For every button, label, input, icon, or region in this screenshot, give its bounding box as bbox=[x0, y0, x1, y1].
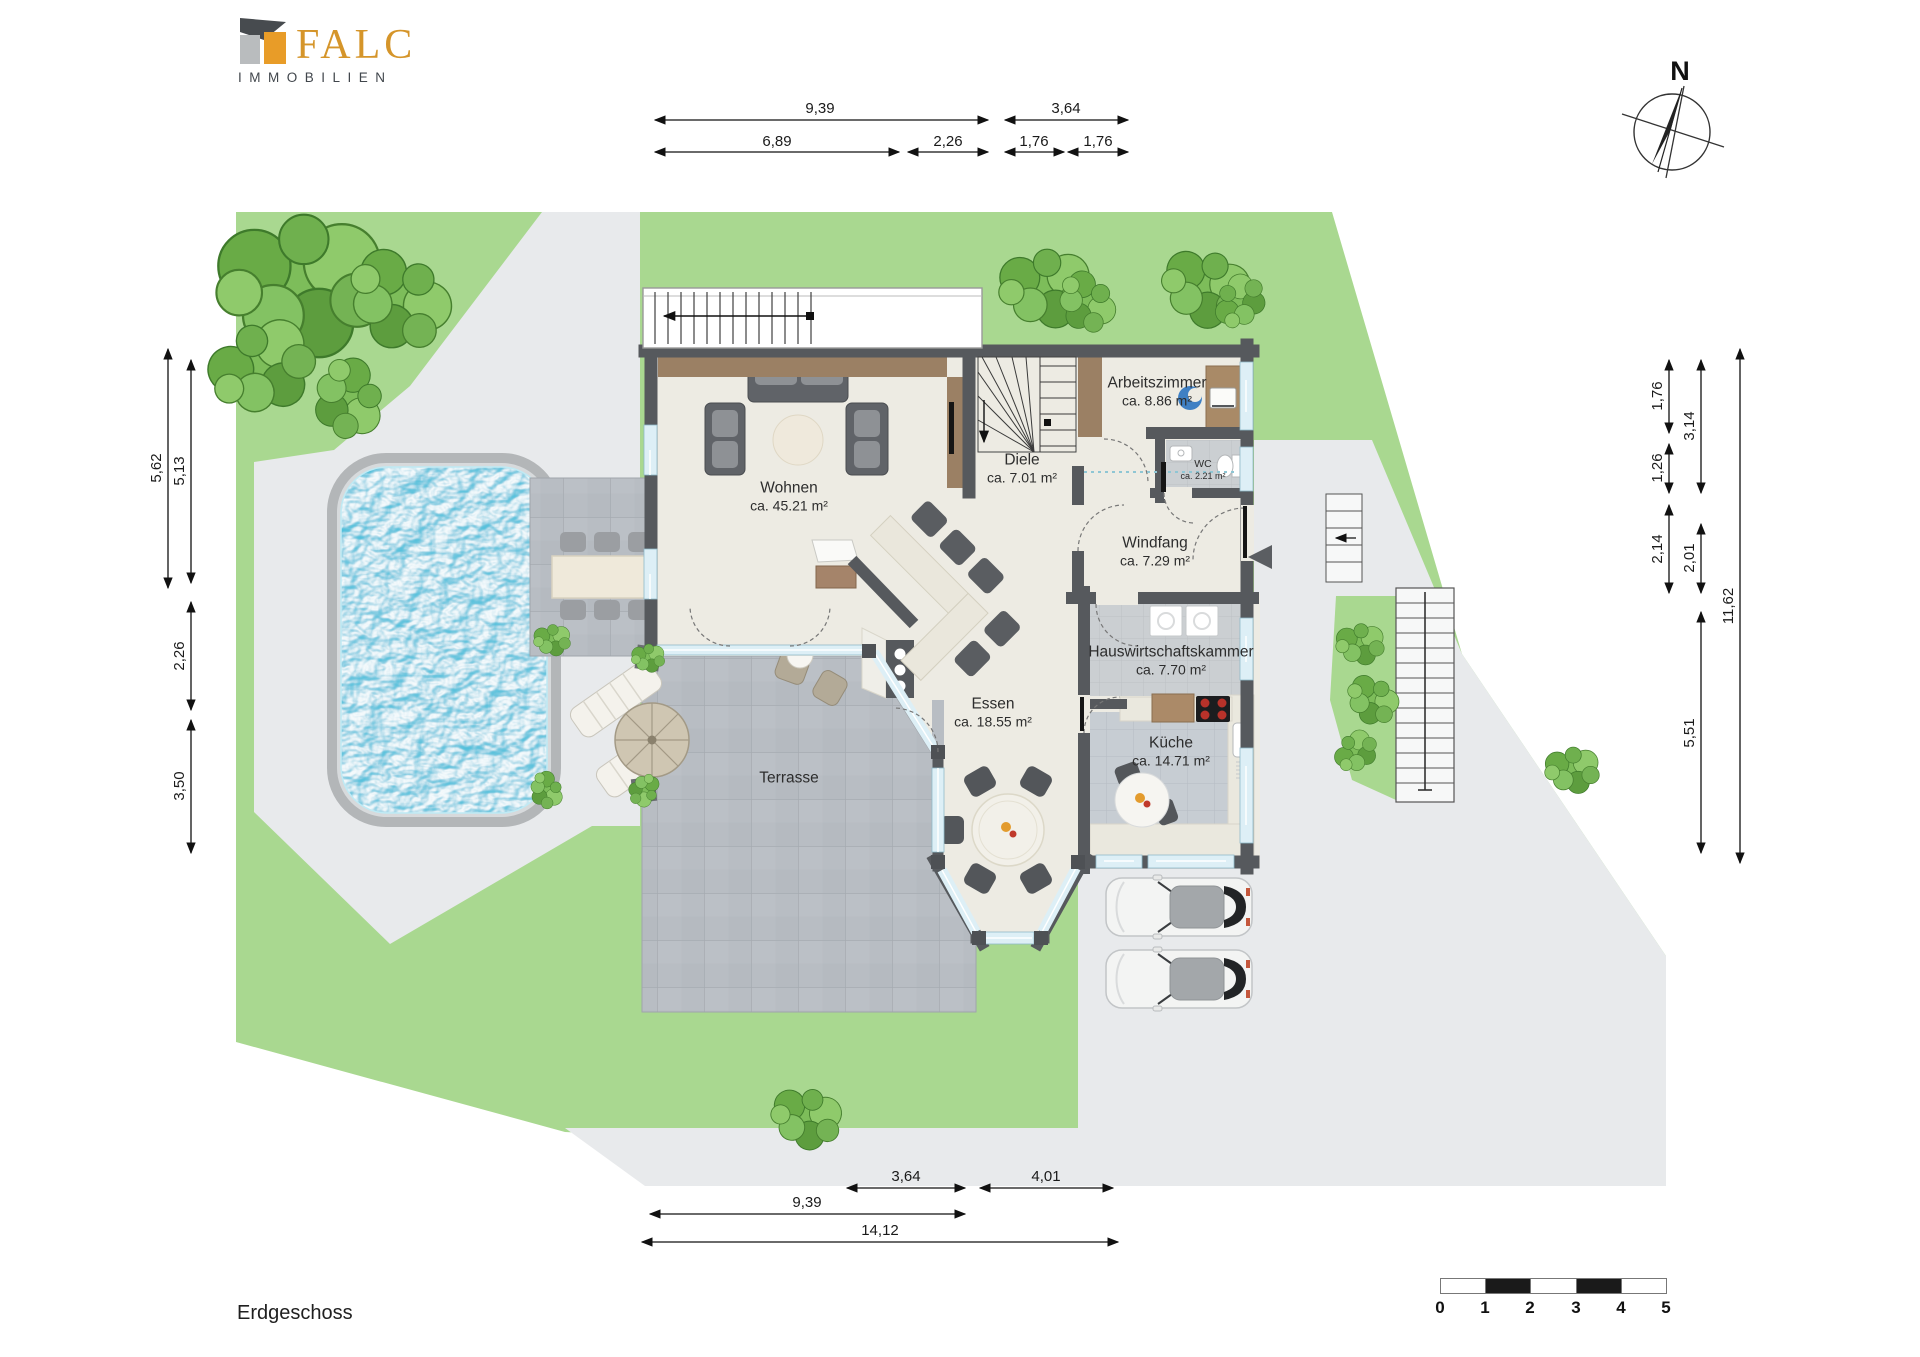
room-label-diele: Diele ca. 7.01 m² bbox=[987, 451, 1057, 488]
room-label-arbeitszimmer: Arbeitszimmer ca. 8.86 m² bbox=[1107, 374, 1206, 411]
car-2 bbox=[1106, 947, 1252, 1011]
exterior-side-stair bbox=[1326, 494, 1362, 582]
dim-label: 2,26 bbox=[171, 641, 188, 670]
dim-label: 9,39 bbox=[805, 100, 834, 117]
terrace-dining-set bbox=[552, 532, 656, 620]
scale-tick: 3 bbox=[1566, 1298, 1586, 1318]
scale-tick: 1 bbox=[1475, 1298, 1495, 1318]
dim-label: 14,12 bbox=[861, 1222, 899, 1239]
pool bbox=[328, 454, 560, 826]
room-label-wc: WC ca. 2.21 m² bbox=[1180, 458, 1225, 482]
dim-label: 1,26 bbox=[1649, 453, 1666, 482]
dim-label: 9,39 bbox=[792, 1194, 821, 1211]
dim-label: 11,62 bbox=[1720, 588, 1737, 624]
dim-label: 3,50 bbox=[171, 771, 188, 800]
scale-tick: 4 bbox=[1611, 1298, 1631, 1318]
dim-label: 5,62 bbox=[148, 453, 165, 482]
dim-label: 1,76 bbox=[1083, 133, 1112, 150]
scale-bar-segment bbox=[1622, 1279, 1666, 1293]
scale-tick: 5 bbox=[1656, 1298, 1676, 1318]
pavement-road bbox=[565, 1128, 1666, 1186]
dim-label: 5,13 bbox=[171, 456, 188, 485]
scale-bar bbox=[1440, 1278, 1667, 1294]
scale-tick: 2 bbox=[1520, 1298, 1540, 1318]
dim-label: 6,89 bbox=[762, 133, 791, 150]
dim-label: 1,76 bbox=[1019, 133, 1048, 150]
site-plan: 9,39 3,64 6,89 2,26 1,76 1,76 5,62 5,13 … bbox=[0, 0, 1920, 1357]
car-1 bbox=[1106, 875, 1252, 939]
room-label-essen: Essen ca. 18.55 m² bbox=[954, 695, 1032, 732]
floor-label: Erdgeschoss bbox=[237, 1302, 353, 1325]
room-label-terrasse: Terrasse bbox=[759, 768, 818, 787]
dim-label: 1,76 bbox=[1649, 381, 1666, 410]
compass: N bbox=[1622, 56, 1724, 178]
room-label-windfang: Windfang ca. 7.29 m² bbox=[1120, 534, 1190, 571]
dim-label: 5,51 bbox=[1681, 718, 1698, 747]
dim-label: 3,64 bbox=[891, 1168, 920, 1185]
dim-label: 4,01 bbox=[1031, 1168, 1060, 1185]
dim-label: 3,14 bbox=[1681, 411, 1698, 440]
dim-label: 2,26 bbox=[933, 133, 962, 150]
dim-label: 2,14 bbox=[1649, 534, 1666, 563]
brand-name: FALC bbox=[296, 26, 416, 66]
scale-bar-segment bbox=[1531, 1279, 1576, 1293]
dim-label: 2,01 bbox=[1681, 543, 1698, 572]
scale-bar-segment bbox=[1577, 1279, 1622, 1293]
dim-label: 3,64 bbox=[1051, 100, 1080, 117]
falc-logo: FALC IMMOBILIEN bbox=[238, 16, 416, 85]
scale-bar-segment bbox=[1486, 1279, 1531, 1293]
brand-subtitle: IMMOBILIEN bbox=[238, 70, 416, 85]
rug bbox=[773, 415, 823, 465]
scale-bar-segment bbox=[1441, 1279, 1486, 1293]
falc-logo-icon bbox=[238, 16, 288, 66]
room-label-kueche: Küche ca. 14.71 m² bbox=[1132, 734, 1210, 771]
room-label-hauswirtschaftskammer: Hauswirtschaftskammer ca. 7.70 m² bbox=[1088, 643, 1253, 680]
upper-deck-stair bbox=[643, 288, 982, 348]
pool-water bbox=[341, 467, 547, 813]
terrace-parasol bbox=[615, 703, 689, 777]
room-label-wohnen: Wohnen ca. 45.21 m² bbox=[750, 479, 828, 516]
scale-tick: 0 bbox=[1430, 1298, 1450, 1318]
exterior-long-stair bbox=[1396, 588, 1454, 802]
floorplan-page: 9,39 3,64 6,89 2,26 1,76 1,76 5,62 5,13 … bbox=[0, 0, 1920, 1357]
north-label: N bbox=[1670, 56, 1690, 86]
